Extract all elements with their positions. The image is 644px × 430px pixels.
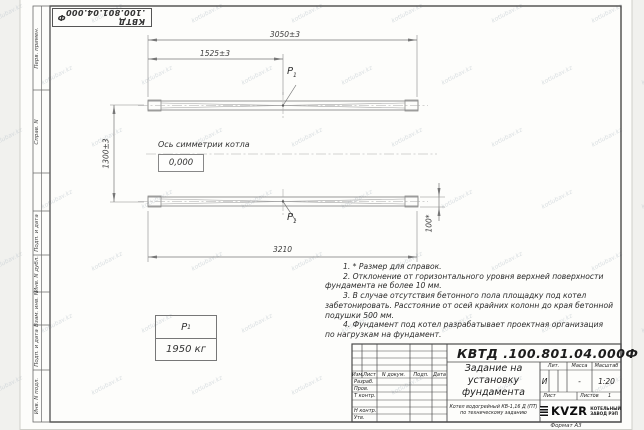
strip-label: Справ. N [34,119,40,144]
load-table-value: 1950 кг [156,339,216,360]
technical-notes: 1. * Размер для справок. 2. Отклонение о… [325,262,621,340]
p-subscript: 1 [187,324,191,331]
note-line: 1. * Размер для справок. [325,262,621,272]
strip-label: Инв. N дубл. [34,255,40,291]
tb-mass-label: Масса [567,363,592,369]
strip-cell-sprav-n: Справ. N [33,90,42,173]
tb-row-razrab: Разраб. [354,379,374,385]
note-line: фундамента не более 10 мм. [325,281,621,291]
tb-lit-value: И [540,370,549,392]
strip-label: Перв. примен. [34,27,40,68]
tb-col-izm: Изм. [352,372,362,378]
strip-cell-inv-podl: Инв. N подл. [33,370,42,422]
tb-row-prov: Пров. [354,386,369,392]
tb-scale-label: Масштаб [592,363,621,369]
note-line: 4. Фундамент под котел разрабатывает про… [325,320,621,330]
level-mark: 0,000 [158,154,204,172]
dim-width-half: 1525±3 [180,49,250,58]
tb-sheets-label: Листов [580,393,599,399]
strip-cell-podp-data-2: Подп. и дата [33,325,42,370]
note-line: подушки 500 мм. [325,311,621,321]
tb-col-list: Лист [362,372,377,378]
tb-row-tkontr: Т контр. [354,393,376,399]
top-stamp-suffix: Ф [57,13,65,22]
tb-title-line: установку [468,375,519,387]
top-stamp-number: КВТД .100.801.04.000 [66,9,145,27]
top-stamp-docnum: КВТД .100.801.04.000 Ф [52,8,152,27]
tb-sheets-value: 1 [608,393,611,399]
strip-label: Взам. инв. N [34,291,40,327]
strip-cell-perv-primen: Перв. примен. [33,6,42,90]
kvzr-logo-text: KVZR [551,404,587,418]
tb-sheet-label: Лист [543,393,556,399]
tb-col-ndocum: N докум. [377,372,410,378]
dim-height-between: 1300±3 [102,136,111,172]
tb-subtitle-line: по техническому заданию [460,411,527,417]
tb-col-podp: Подп. [410,372,432,378]
tb-title-line: Задание на [465,363,523,375]
strip-label: Инв. N подл. [34,378,40,414]
format-label: Формат А3 [516,423,616,429]
tb-row-nkontr: Н контр. [354,408,376,414]
tb-subtitle: Котел водогрейный КВ-1,16 Д (ПТ) по техн… [447,400,540,422]
drawing-sheet: kotlubav.kzkotlubav.kzkotlubav.kzkotluba… [0,0,644,430]
load-point-label-top: P1 [287,66,297,79]
p-subscript: 1 [293,218,297,225]
load-point-label-bottom: P1 [287,212,297,225]
axis-of-symmetry-label: Ось симметрии котла [158,140,250,149]
dim-beam-height: 100* [425,209,434,239]
note-line: 2. Отклонение от горизонтального уровня … [325,272,621,282]
company-name: КОТЕЛЬНЫЙ ЗАВОД РЭП [590,406,621,416]
tb-scale-value: 1:20 [592,370,621,392]
note-line: забетонировать. Расстояние от осей крайн… [325,301,621,311]
dim-length-bottom: 3210 [250,245,315,254]
dim-width-total: 3050±3 [240,30,330,39]
note-line: 3. В случае отсутствия бетонного пола пл… [325,291,621,301]
tb-document-number: КВТД .100.801.04.000 Ф [447,344,621,362]
kvzr-logo-icon [540,406,548,417]
note-line: по нагрузкам на фундамент. [325,330,621,340]
tb-mass-value: - [567,370,592,392]
company-logo-cell: KVZR КОТЕЛЬНЫЙ ЗАВОД РЭП [540,400,621,422]
p-subscript: 1 [293,72,297,79]
strip-cell-vzam-inv: Взам. инв. N [33,292,42,325]
strip-cell-inv-dubl: Инв. N дубл. [33,255,42,292]
tb-drawing-title: Задание на установку фундамента [447,362,540,400]
strip-label: Подп. и дата [34,214,40,251]
tb-row-utv: Утв. [354,415,365,421]
tb-lit-label: Лит. [540,363,567,369]
company-line: ЗАВОД РЭП [590,411,621,416]
strip-cell-podp-data-1: Подп. и дата [33,211,42,255]
load-value-table: P1 1950 кг [155,315,217,361]
tb-col-data: Дата [432,372,447,378]
tb-title-line: фундамента [462,387,525,399]
load-table-header: P1 [156,316,216,339]
strip-label: Подп. и дата [34,329,40,366]
tb-docnum-text: КВТД .100.801.04.000 [457,346,625,361]
tb-docnum-suffix: Ф [625,346,638,361]
